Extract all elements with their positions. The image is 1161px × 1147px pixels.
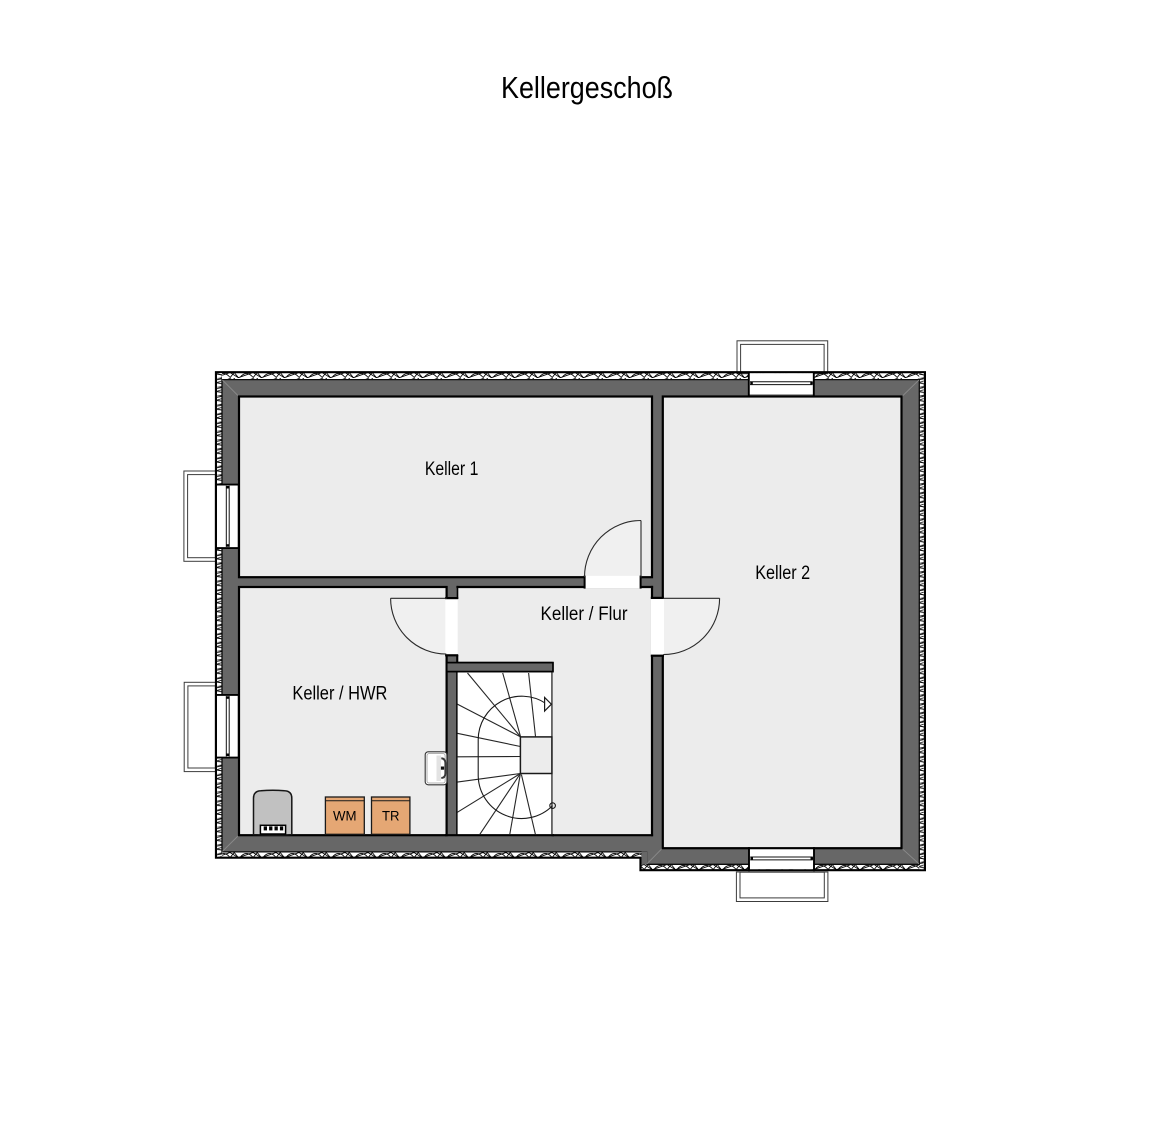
svg-text:WM: WM (333, 809, 357, 824)
svg-text:Keller / Flur: Keller / Flur (541, 604, 629, 625)
svg-text:Keller 1: Keller 1 (425, 459, 479, 480)
svg-text:TR: TR (382, 809, 400, 824)
svg-text:Keller 2: Keller 2 (755, 563, 810, 584)
svg-text:Keller / HWR: Keller / HWR (292, 683, 387, 704)
svg-text:Kellergeschoß: Kellergeschoß (501, 70, 673, 105)
